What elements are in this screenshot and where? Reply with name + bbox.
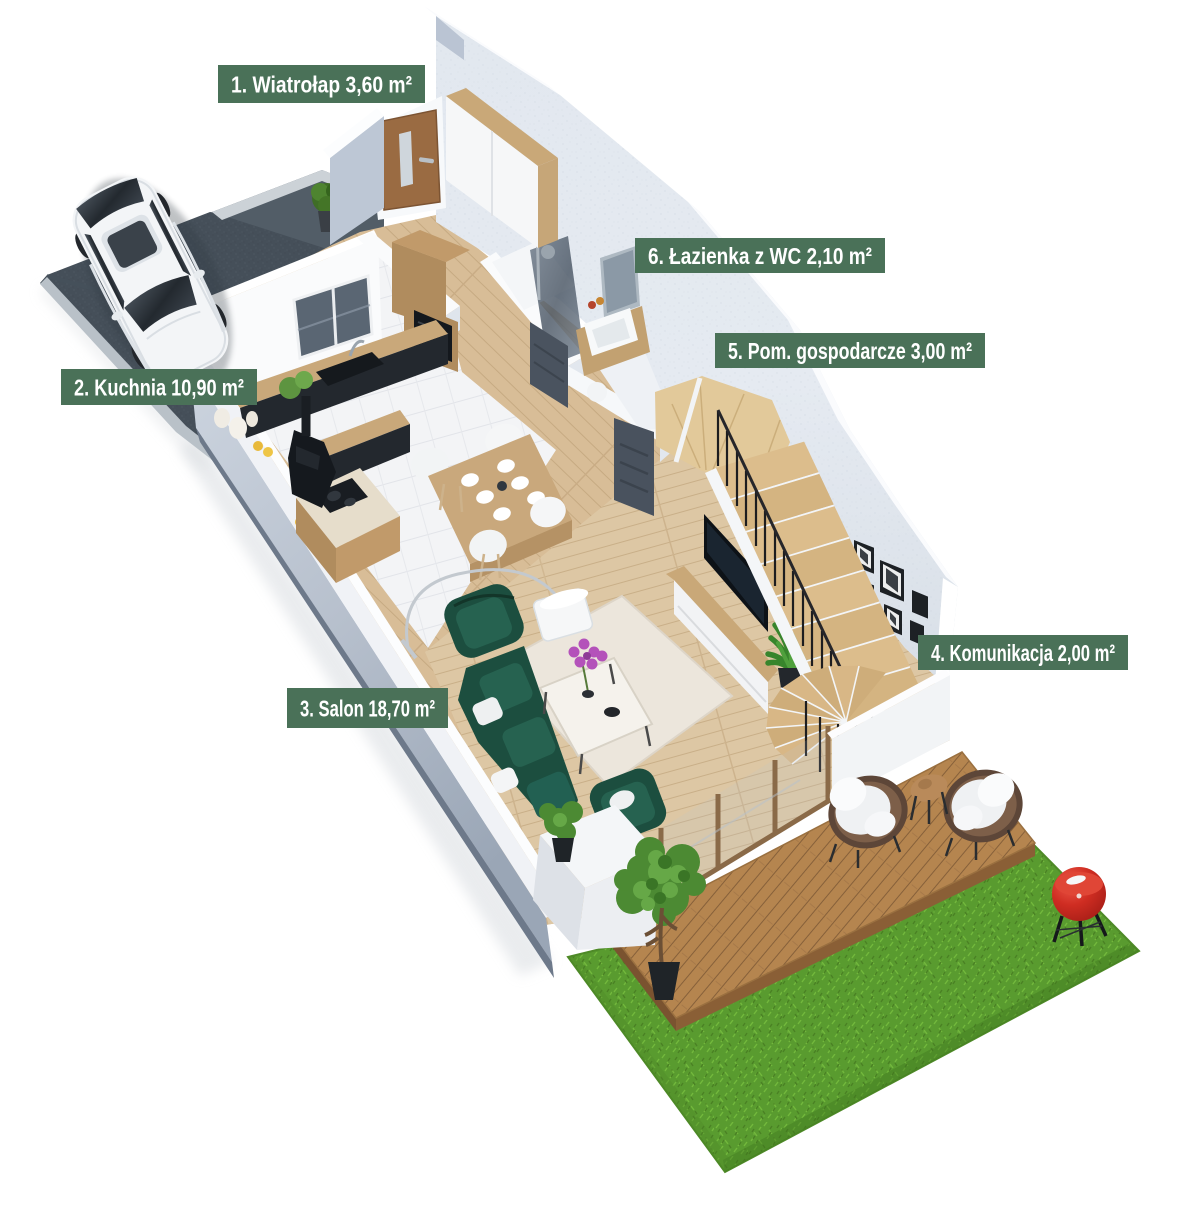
svg-text:1. Wiatrołap 3,60 m²: 1. Wiatrołap 3,60 m²	[231, 71, 412, 97]
svg-text:4. Komunikacja 2,00 m²: 4. Komunikacja 2,00 m²	[931, 640, 1115, 666]
svg-text:6. Łazienka z WC 2,10 m²: 6. Łazienka z WC 2,10 m²	[648, 243, 872, 269]
svg-text:2. Kuchnia 10,90 m²: 2. Kuchnia 10,90 m²	[74, 374, 244, 400]
svg-text:5. Pom. gospodarcze 3,00 m²: 5. Pom. gospodarcze 3,00 m²	[728, 338, 972, 364]
svg-text:3. Salon 18,70 m²: 3. Salon 18,70 m²	[300, 695, 435, 721]
